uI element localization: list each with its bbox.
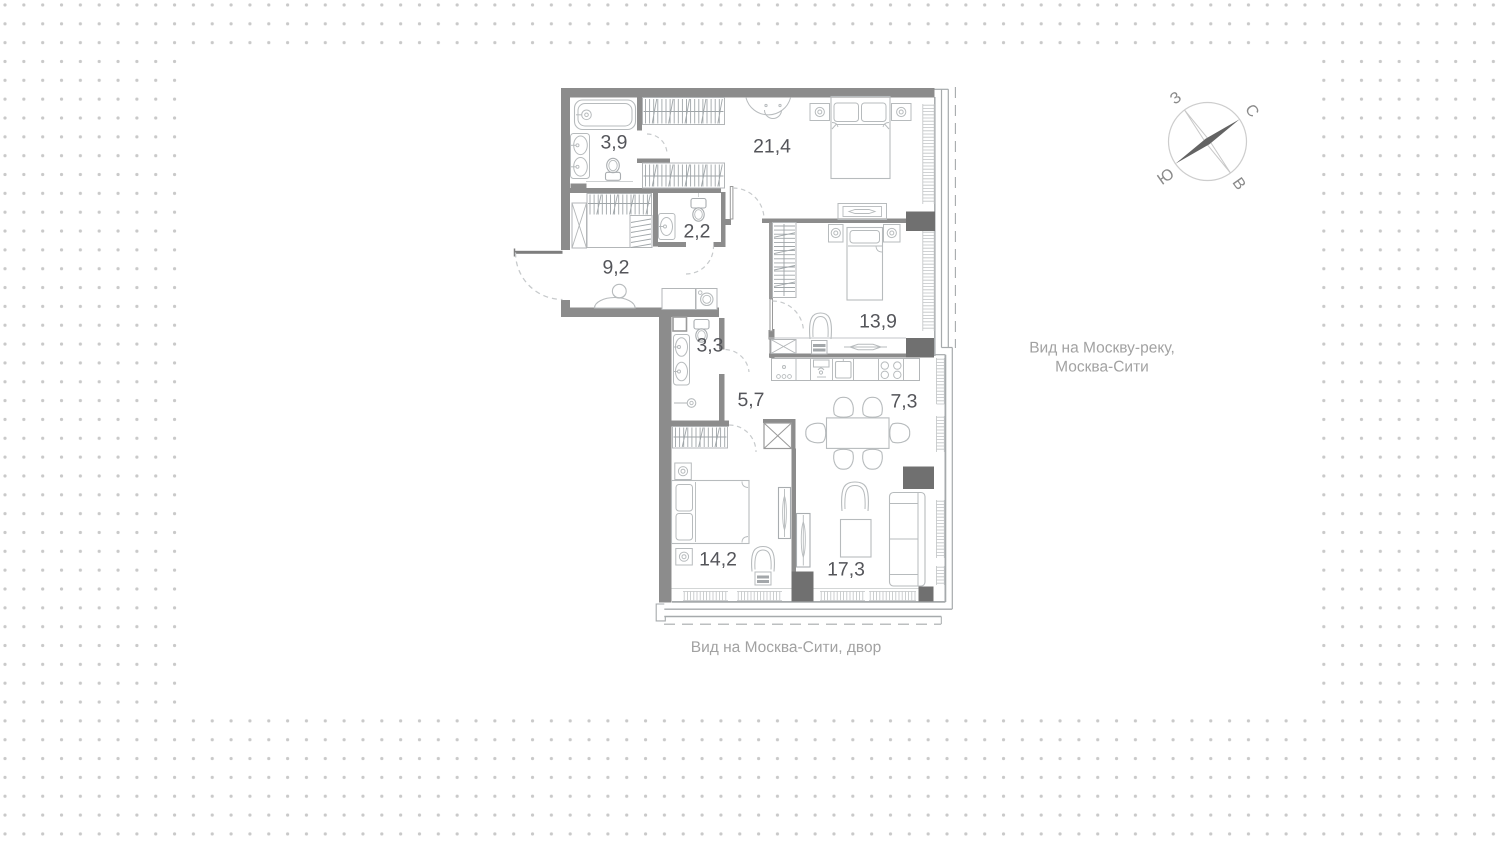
svg-text:3,9: 3,9 <box>601 132 628 154</box>
svg-text:17,3: 17,3 <box>827 559 865 581</box>
svg-text:2,2: 2,2 <box>684 221 711 243</box>
svg-text:Москва-Сити: Москва-Сити <box>1055 359 1149 376</box>
svg-text:Вид на Москва-Сити, двор: Вид на Москва-Сити, двор <box>691 639 881 656</box>
svg-text:21,4: 21,4 <box>753 136 791 158</box>
svg-text:7,3: 7,3 <box>891 391 918 413</box>
svg-text:3,3: 3,3 <box>697 335 724 357</box>
svg-text:Вид на Москву-реку,: Вид на Москву-реку, <box>1029 340 1175 357</box>
svg-text:9,2: 9,2 <box>603 257 630 279</box>
svg-text:14,2: 14,2 <box>699 549 737 571</box>
svg-text:5,7: 5,7 <box>738 389 765 411</box>
svg-text:13,9: 13,9 <box>859 311 897 333</box>
